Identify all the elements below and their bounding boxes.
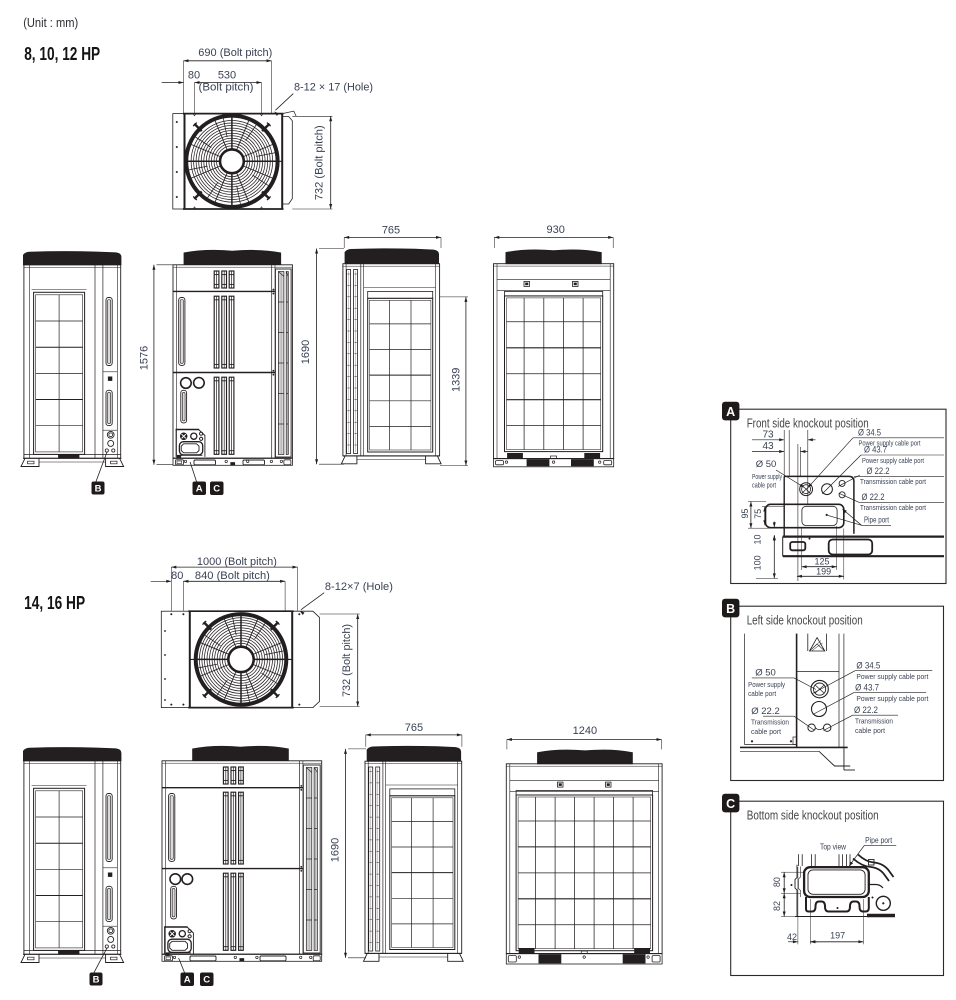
svg-text:B: B	[726, 602, 735, 616]
svg-text:732 (Bolt pitch): 732 (Bolt pitch)	[314, 125, 326, 200]
svg-text:(Unit : mm): (Unit : mm)	[23, 15, 78, 30]
svg-text:C: C	[726, 797, 735, 811]
svg-text:1000 (Bolt pitch): 1000 (Bolt pitch)	[197, 556, 277, 568]
svg-text:Bottom side knockout position: Bottom side knockout position	[747, 809, 879, 823]
svg-text:Left side knockout position: Left side knockout position	[747, 614, 863, 628]
svg-text:A: A	[726, 405, 735, 419]
svg-text:930: 930	[547, 224, 565, 236]
svg-text:Ø 34.5: Ø 34.5	[858, 428, 881, 439]
svg-text:42: 42	[787, 932, 797, 942]
svg-text:690 (Bolt pitch): 690 (Bolt pitch)	[198, 47, 272, 59]
svg-text:B: B	[95, 484, 102, 495]
svg-text:Ø 22.2: Ø 22.2	[862, 492, 885, 503]
svg-text:Pipe port: Pipe port	[865, 836, 893, 845]
svg-text:14, 16 HP: 14, 16 HP	[24, 593, 85, 613]
svg-text:cable port: cable port	[751, 727, 782, 736]
svg-text:cable port: cable port	[748, 689, 777, 698]
svg-text:Power supply cable port: Power supply cable port	[856, 672, 929, 681]
svg-text:8, 10, 12 HP: 8, 10, 12 HP	[24, 44, 100, 64]
svg-text:80: 80	[772, 877, 782, 887]
svg-text:(Bolt pitch): (Bolt pitch)	[199, 82, 254, 94]
svg-text:530: 530	[218, 70, 236, 82]
svg-text:197: 197	[830, 931, 845, 941]
svg-text:Ø 22.2: Ø 22.2	[854, 705, 878, 716]
svg-text:C: C	[203, 975, 210, 986]
svg-text:cable port: cable port	[855, 726, 886, 735]
svg-text:1240: 1240	[573, 725, 597, 737]
svg-text:C: C	[213, 484, 220, 495]
svg-text:10: 10	[753, 534, 763, 544]
svg-text:Power supply: Power supply	[748, 680, 785, 689]
svg-text:1690: 1690	[300, 340, 312, 364]
svg-text:Ø 43.7: Ø 43.7	[855, 682, 879, 693]
svg-text:8-12×7 (Hole): 8-12×7 (Hole)	[325, 581, 393, 593]
svg-text:199: 199	[816, 567, 831, 577]
svg-text:cable port: cable port	[752, 483, 776, 490]
svg-text:82: 82	[772, 901, 782, 911]
svg-text:732 (Bolt pitch): 732 (Bolt pitch)	[341, 624, 353, 697]
svg-text:B: B	[93, 975, 100, 986]
svg-text:Power supply cable port: Power supply cable port	[862, 458, 924, 465]
svg-text:100: 100	[753, 555, 763, 570]
svg-text:73: 73	[762, 429, 774, 440]
svg-text:95: 95	[740, 508, 750, 518]
svg-text:1339: 1339	[451, 368, 463, 392]
svg-text:Transmission: Transmission	[855, 717, 893, 726]
svg-text:Transmission cable port: Transmission cable port	[860, 505, 926, 512]
svg-text:Top view: Top view	[820, 843, 846, 852]
svg-text:Ø 50: Ø 50	[755, 667, 776, 678]
svg-text:765: 765	[405, 722, 423, 734]
svg-text:8-12 × 17 (Hole): 8-12 × 17 (Hole)	[294, 82, 373, 94]
svg-text:80: 80	[188, 70, 200, 82]
svg-text:A: A	[196, 484, 203, 495]
svg-text:Ø 50: Ø 50	[756, 459, 777, 470]
svg-text:840 (Bolt pitch): 840 (Bolt pitch)	[195, 570, 270, 582]
svg-text:A: A	[184, 975, 191, 986]
svg-text:1690: 1690	[330, 838, 342, 862]
svg-text:43: 43	[762, 441, 774, 452]
svg-text:125: 125	[814, 557, 829, 567]
svg-text:765: 765	[382, 224, 400, 236]
svg-text:Ø 34.5: Ø 34.5	[856, 660, 880, 671]
svg-text:Transmission cable port: Transmission cable port	[860, 479, 926, 486]
svg-text:80: 80	[171, 570, 183, 582]
svg-text:Ø 43.7: Ø 43.7	[864, 445, 887, 456]
svg-text:1576: 1576	[139, 346, 151, 370]
svg-text:Transmission: Transmission	[751, 718, 789, 727]
svg-text:Ø 22.2: Ø 22.2	[867, 466, 890, 477]
svg-text:Ø 22.2: Ø 22.2	[751, 706, 780, 717]
svg-text:Pipe port: Pipe port	[864, 516, 890, 525]
svg-text:Power supply cable port: Power supply cable port	[856, 694, 929, 703]
svg-text:75: 75	[753, 509, 763, 519]
svg-text:Power supply: Power supply	[752, 474, 782, 481]
